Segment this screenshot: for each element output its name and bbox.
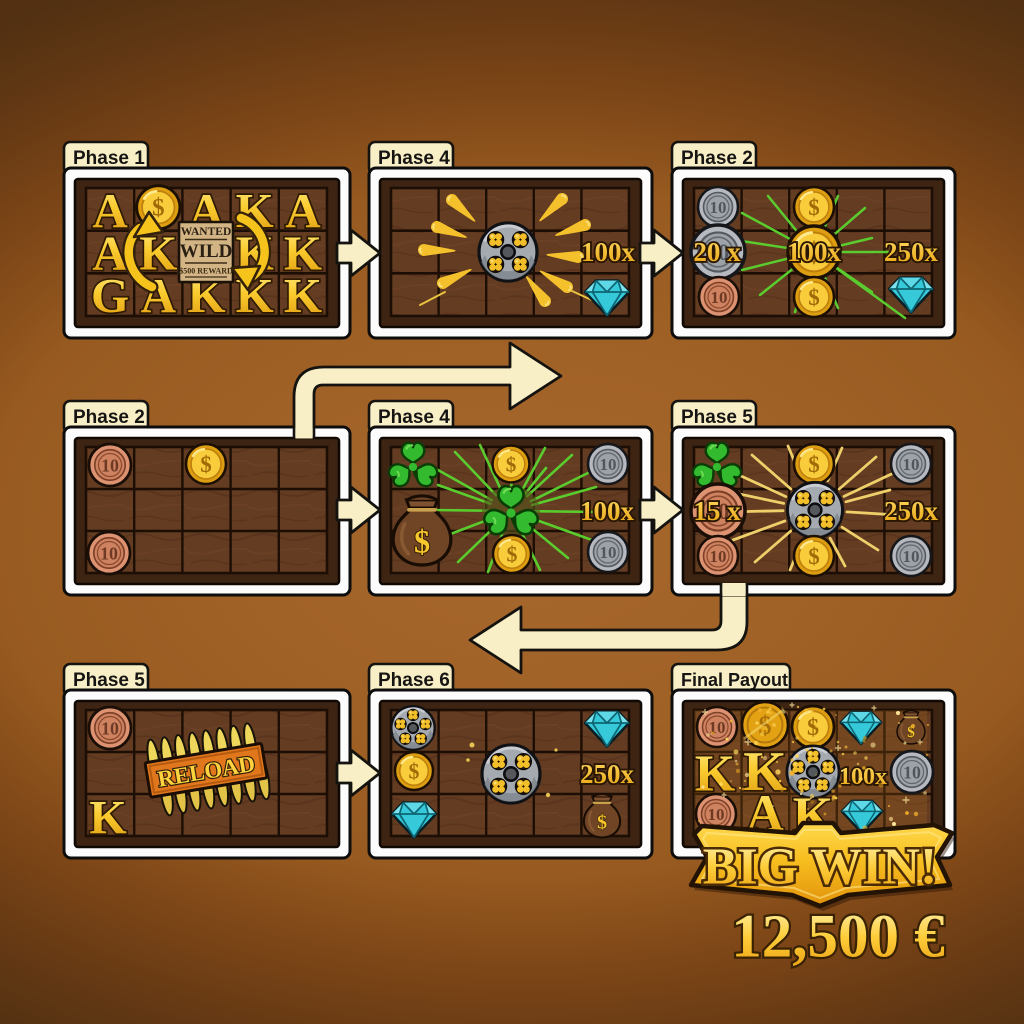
svg-text:12,500 €: 12,500 € [731, 904, 945, 971]
svg-text:Phase 5: Phase 5 [73, 670, 145, 691]
svg-text:G: G [91, 268, 129, 323]
svg-text:WANTED: WANTED [181, 226, 231, 238]
svg-text:Phase 4: Phase 4 [378, 407, 450, 428]
svg-text:K: K [89, 792, 126, 845]
svg-text:Phase 6: Phase 6 [378, 670, 450, 691]
svg-text:250x: 250x [580, 759, 635, 789]
svg-text:20 x: 20 x [693, 237, 741, 267]
svg-text:Phase 5: Phase 5 [681, 407, 753, 428]
svg-text:250x: 250x [884, 237, 939, 267]
svg-text:250x: 250x [884, 496, 939, 526]
svg-text:100x: 100x [787, 237, 842, 267]
svg-text:100x: 100x [580, 496, 635, 526]
svg-text:100x: 100x [581, 237, 636, 267]
svg-text:Phase 1: Phase 1 [73, 148, 145, 169]
svg-text:Final Payout: Final Payout [681, 670, 788, 690]
svg-text:15 x: 15 x [693, 496, 741, 526]
svg-text:Phase 2: Phase 2 [73, 407, 145, 428]
svg-text:[$500 REWARD]: [$500 REWARD] [177, 267, 236, 276]
svg-text:Phase 2: Phase 2 [681, 148, 753, 169]
svg-text:Phase 4: Phase 4 [378, 148, 450, 169]
svg-text:BIG WIN!: BIG WIN! [703, 839, 938, 896]
svg-text:WILD: WILD [180, 241, 233, 262]
svg-text:K: K [284, 268, 322, 323]
